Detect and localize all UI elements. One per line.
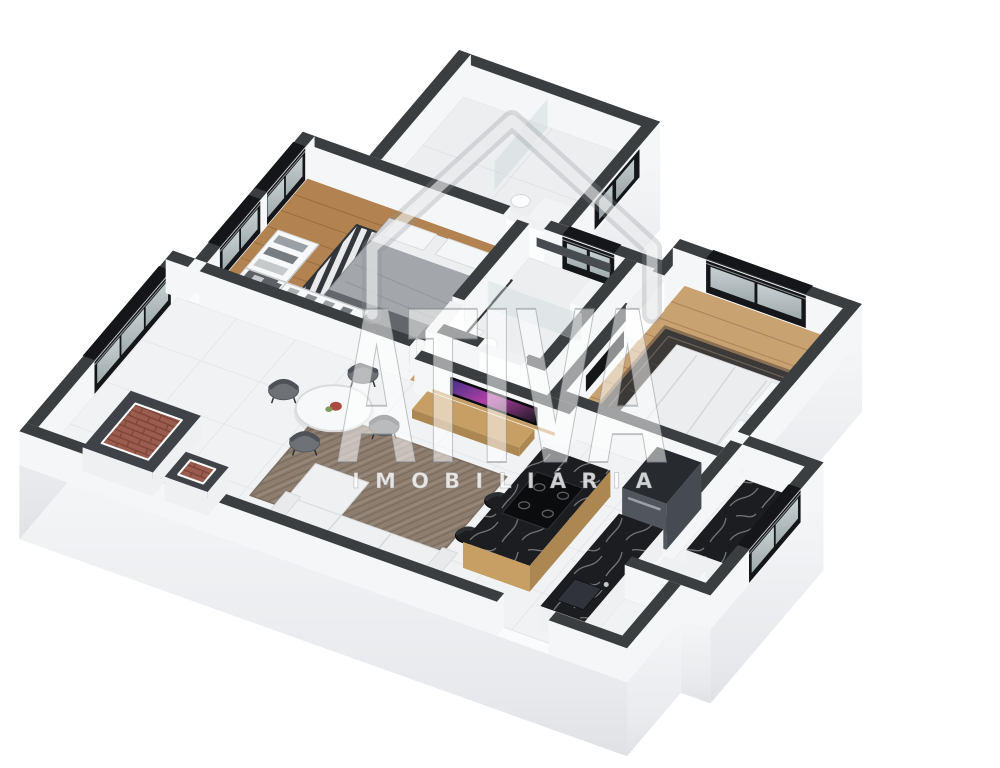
floorplan-render: ATIVA IMOBILIÁRIA — [0, 0, 1000, 768]
wall-west-step — [166, 251, 195, 301]
floorplan-svg: ATIVA IMOBILIÁRIA — [0, 0, 1000, 768]
